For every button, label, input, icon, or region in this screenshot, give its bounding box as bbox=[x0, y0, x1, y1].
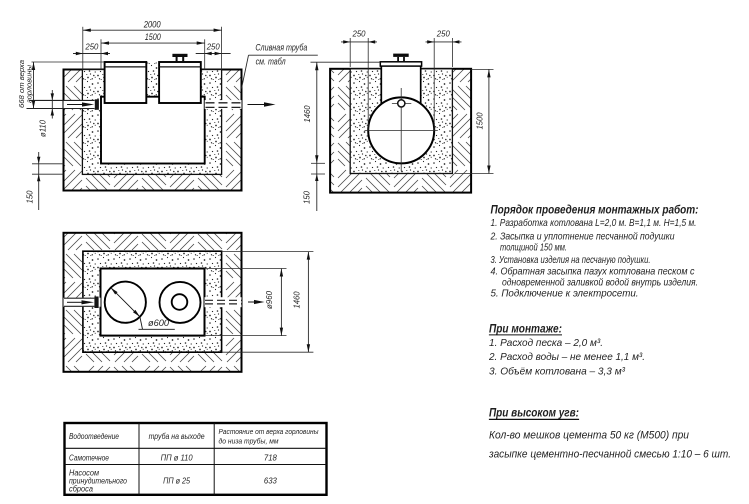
svg-text:Водоотведение: Водоотведение bbox=[69, 432, 119, 441]
svg-text:5. Подключение к электросети.: 5. Подключение к электросети. bbox=[491, 288, 639, 300]
svg-text:ПП ø 110: ПП ø 110 bbox=[161, 453, 193, 462]
svg-text:1500: 1500 bbox=[145, 32, 161, 42]
svg-text:150: 150 bbox=[303, 191, 312, 204]
svg-text:ø960: ø960 bbox=[265, 291, 274, 309]
svg-text:1500: 1500 bbox=[475, 112, 484, 129]
svg-text:Самотечное: Самотечное bbox=[69, 453, 109, 462]
svg-text:Порядок проведения монтажных р: Порядок проведения монтажных работ: bbox=[491, 205, 699, 217]
svg-text:3. Установка изделия на песчан: 3. Установка изделия на песчаную подушки… bbox=[491, 254, 651, 266]
svg-text:горловины: горловины bbox=[24, 64, 33, 103]
svg-text:Растояние от верха горловины: Растояние от верха горловины bbox=[219, 427, 319, 436]
svg-text:При монтаже:: При монтаже: bbox=[489, 324, 562, 336]
svg-text:засыпке цементно-песчанной сме: засыпке цементно-песчанной смесью 1:10 –… bbox=[488, 448, 731, 460]
svg-text:250: 250 bbox=[206, 42, 220, 52]
svg-text:718: 718 bbox=[264, 453, 277, 462]
svg-text:2. Расход воды – не менее 1,: 2. Расход воды – не менее 1,1 м³. bbox=[488, 351, 645, 363]
svg-text:Сливная труба: Сливная труба bbox=[255, 43, 307, 53]
svg-text:250: 250 bbox=[436, 29, 450, 39]
svg-text:ПП ø 25: ПП ø 25 bbox=[163, 476, 190, 485]
svg-text:2000: 2000 bbox=[143, 19, 161, 29]
svg-text:633: 633 bbox=[264, 476, 277, 485]
svg-text:1460: 1460 bbox=[293, 291, 302, 308]
svg-text:труба на выходе: труба на выходе bbox=[149, 432, 205, 441]
svg-text:ø110: ø110 bbox=[39, 120, 48, 137]
svg-text:3. Объём котлована – 3,3 м³: 3. Объём котлована – 3,3 м³ bbox=[489, 365, 625, 377]
svg-text:250: 250 bbox=[84, 42, 98, 52]
svg-text:150: 150 bbox=[26, 190, 35, 203]
svg-text:Кол-во мешков цемента 50 кг (М: Кол-во мешков цемента 50 кг (М500) при bbox=[489, 429, 689, 441]
svg-text:см. табл: см. табл bbox=[256, 57, 286, 67]
svg-text:2. Засыпка и уплотнение песчан: 2. Засыпка и уплотнение песчанной подушк… bbox=[490, 230, 675, 242]
svg-text:ø600: ø600 bbox=[148, 318, 169, 328]
svg-text:1460: 1460 bbox=[303, 105, 312, 122]
svg-text:1. Расход песка – 2,0 м³.: 1. Расход песка – 2,0 м³. bbox=[489, 337, 603, 349]
svg-text:до низа трубы, мм: до низа трубы, мм bbox=[219, 437, 280, 446]
svg-text:сброса: сброса bbox=[69, 484, 94, 493]
svg-text:толщиной 150 мм.: толщиной 150 мм. bbox=[500, 242, 567, 254]
svg-text:250: 250 bbox=[352, 29, 366, 39]
svg-text:При высоком угв:: При высоком угв: bbox=[489, 406, 579, 420]
svg-text:1. Разработка котлована L=2,0: 1. Разработка котлована L=2,0 м. В=1,1 м… bbox=[491, 217, 697, 229]
